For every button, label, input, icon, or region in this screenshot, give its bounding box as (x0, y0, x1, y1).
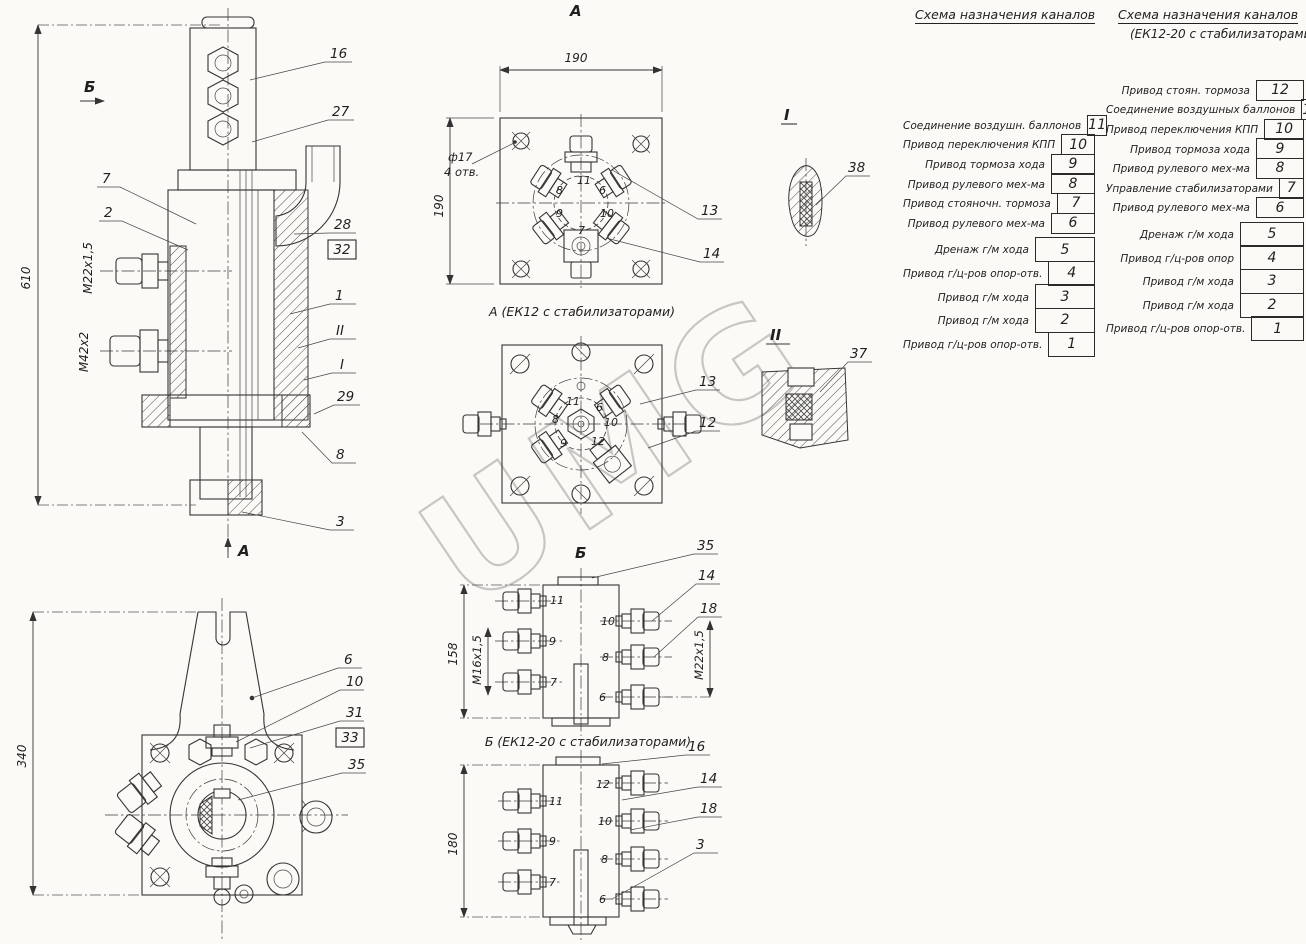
table-row: Привод переключения КПП10 (903, 136, 1095, 156)
port-s2-8: 8 (601, 853, 608, 866)
table-row: Дренаж г/м хода5 (1106, 223, 1304, 247)
channel-number: 12 (1256, 80, 1304, 101)
channel-table-left: Схема назначения каналов Соединение возд… (903, 4, 1095, 357)
channel-number: 11 (1301, 99, 1306, 120)
channel-number: 3 (1240, 269, 1304, 294)
port-b-9: 9 (560, 437, 567, 450)
table-row: Привод переключения КПП10 (1106, 120, 1304, 140)
callout-a-14: 14 (703, 246, 720, 262)
channel-table-right-title: Схема назначения каналов (1118, 7, 1298, 24)
callout-section-ii: II (336, 323, 344, 339)
callout-37: 37 (850, 346, 868, 362)
callout-s1-14: 14 (698, 568, 715, 584)
channel-label: Привод г/м хода (903, 286, 1035, 310)
callout-b-12: 12 (699, 415, 716, 431)
thread-spec-lower: М42х2 (77, 332, 91, 372)
channel-table-right: Схема назначения каналов (ЕК12-20 с стаб… (1106, 4, 1304, 341)
table-row: Привод г/ц-ров опор4 (1106, 247, 1304, 271)
channel-label: Привод г/ц-ров опор-отв. (903, 262, 1048, 286)
table-row: Привод тормоза хода9 (903, 155, 1095, 175)
channel-number: 5 (1035, 237, 1095, 262)
port-a-8: 8 (556, 184, 563, 197)
callout-1: 1 (335, 288, 344, 304)
callout-s2-14: 14 (700, 771, 717, 787)
port-a-6: 6 (599, 184, 606, 197)
channel-label: Привод г/м хода (1106, 270, 1240, 294)
port-a-11: 11 (577, 174, 591, 187)
callout-33: 33 (341, 730, 358, 746)
dim-bottom-height: 340 (15, 744, 29, 767)
port-a-9: 9 (556, 207, 563, 220)
thread-s1-right: М22х1,5 (692, 630, 706, 680)
callout-27: 27 (332, 104, 350, 120)
callout-29: 29 (337, 389, 354, 405)
channel-table-right-subtitle: (ЕК12-20 с стабилизаторами) (1130, 27, 1304, 41)
side-view-2: 12 11 10 9 8 7 6 180 16 14 18 3 (446, 739, 722, 940)
callout-7: 7 (102, 171, 111, 187)
channel-number: 2 (1035, 308, 1095, 333)
table-row: Привод г/м хода2 (1106, 294, 1304, 318)
channel-number: 9 (1051, 154, 1095, 175)
view-b-label: Б (575, 544, 586, 562)
channel-label: Привод тормоза хода (1106, 140, 1256, 160)
table-row: Привод г/ц-ров опор-отв.4 (903, 262, 1095, 286)
channel-label: Привод переключения КПП (1106, 120, 1264, 140)
port-s1-10: 10 (601, 615, 615, 628)
port-s2-7: 7 (549, 876, 556, 889)
detail-ii-label: II (770, 326, 782, 344)
table-row: Привод рулевого мех-ма6 (903, 214, 1095, 234)
view-a-caption: А (ЕК12 с стабилизаторами) (488, 304, 675, 319)
channel-label: Соединение воздушн. баллонов (903, 116, 1087, 136)
flange-view-a: А 190 190 ф17 4 отв. 8 11 6 9 (432, 2, 724, 319)
table-row: Привод тормоза хода9 (1106, 140, 1304, 160)
callout-a-13: 13 (701, 203, 718, 219)
port-a-7: 7 (578, 224, 585, 237)
channel-number: 10 (1061, 134, 1095, 155)
channel-number: 3 (1035, 284, 1095, 309)
channel-label: Привод стояночн. тормоза (903, 194, 1057, 214)
channel-label: Привод г/м хода (903, 309, 1035, 333)
channel-table-left-title: Схема назначения каналов (915, 7, 1095, 24)
view-arrow-b-label: Б (84, 78, 95, 96)
port-b-11: 11 (566, 395, 580, 408)
channel-table-left-rows-top: Соединение воздушн. баллонов11Привод пер… (903, 116, 1095, 234)
channel-number: 8 (1051, 173, 1095, 194)
callout-6: 6 (344, 652, 353, 668)
dim-s1-height: 158 (446, 642, 460, 665)
channel-label: Привод г/ц-ров опор (1106, 247, 1240, 271)
table-row: Привод рулевого мех-ма6 (1106, 199, 1304, 219)
channel-number: 6 (1051, 213, 1095, 234)
callout-38: 38 (848, 160, 865, 176)
dim-total-height: 610 (19, 266, 33, 289)
callout-s2-18: 18 (700, 801, 717, 817)
port-a-10: 10 (600, 207, 614, 220)
dim-a-height: 190 (432, 194, 446, 217)
channel-label: Дренаж г/м хода (903, 239, 1035, 263)
channel-table-left-rows-bottom: Дренаж г/м хода5Привод г/ц-ров опор-отв.… (903, 239, 1095, 357)
callout-8: 8 (336, 447, 345, 463)
table-row: Привод рулевого мех-ма8 (1106, 159, 1304, 179)
port-s2-11: 11 (549, 795, 563, 808)
channel-number: 11 (1087, 115, 1107, 136)
channel-label: Привод тормоза хода (903, 155, 1051, 175)
callout-28: 28 (334, 217, 351, 233)
port-s1-7: 7 (550, 676, 557, 689)
table-row: Привод г/м хода3 (1106, 270, 1304, 294)
callout-3: 3 (336, 514, 345, 530)
channel-label: Управление стабилизаторами (1106, 179, 1279, 199)
channel-label: Привод рулевого мех-ма (1106, 159, 1256, 179)
callout-32: 32 (333, 242, 350, 258)
port-b-10: 10 (604, 416, 618, 429)
channel-number: 4 (1240, 245, 1304, 270)
channel-number: 2 (1240, 293, 1304, 318)
channel-label: Привод г/ц-ров опор-отв. (1106, 318, 1251, 342)
port-b-6: 6 (596, 401, 603, 414)
port-s2-6: 6 (599, 893, 606, 906)
table-row: Привод г/м хода2 (903, 309, 1095, 333)
view-arrow-a-label: А (237, 542, 250, 560)
table-row: Привод стоян. тормоза12 (1106, 81, 1304, 101)
channel-number: 7 (1279, 178, 1304, 199)
channel-number: 5 (1240, 222, 1304, 247)
port-s1-9: 9 (549, 635, 556, 648)
port-b-8: 8 (552, 413, 559, 426)
callout-s1-35: 35 (697, 538, 714, 554)
channel-label: Привод стоян. тормоза (1106, 81, 1256, 101)
table-row: Дренаж г/м хода5 (903, 239, 1095, 263)
callout-s2-3: 3 (696, 837, 705, 853)
channel-number: 9 (1256, 138, 1304, 159)
table-row: Привод г/ц-ров опор-отв.1 (1106, 318, 1304, 342)
port-s2-12: 12 (596, 778, 610, 791)
table-row: Привод рулевого мех-ма8 (903, 175, 1095, 195)
channel-label: Привод переключения КПП (903, 136, 1061, 156)
channel-number: 10 (1264, 119, 1304, 140)
port-s1-8: 8 (602, 651, 609, 664)
callout-s2-16: 16 (688, 739, 705, 755)
channel-label: Привод г/м хода (1106, 294, 1240, 318)
main-section-view: 610 Б М (19, 8, 360, 560)
detail-i-label: I (784, 106, 790, 124)
table-row: Соединение воздушн. баллонов11 (903, 116, 1095, 136)
hole-note-dia: ф17 (448, 150, 473, 164)
dim-s2-height: 180 (446, 832, 460, 855)
callout-10: 10 (346, 674, 363, 690)
hole-note-count: 4 отв. (444, 165, 479, 179)
port-s1-11: 11 (550, 594, 564, 607)
table-row: Управление стабилизаторами7 (1106, 179, 1304, 199)
channel-label: Дренаж г/м хода (1106, 223, 1240, 247)
channel-label: Привод рулевого мех-ма (903, 175, 1051, 195)
callout-35-bottom: 35 (348, 757, 365, 773)
view-a-label: А (569, 2, 582, 20)
port-s2-9: 9 (549, 835, 556, 848)
callout-section-i: I (340, 357, 344, 373)
port-s1-6: 6 (599, 691, 606, 704)
channel-number: 4 (1048, 261, 1095, 286)
channel-table-right-rows-top: Привод стоян. тормоза12Соединение воздуш… (1106, 81, 1304, 218)
callout-b-13: 13 (699, 374, 716, 390)
channel-label: Привод рулевого мех-ма (903, 214, 1051, 234)
table-row: Соединение воздушных баллонов11 (1106, 101, 1304, 121)
table-row: Привод стояночн. тормоза7 (903, 194, 1095, 214)
callout-16: 16 (330, 46, 347, 62)
channel-number: 7 (1057, 193, 1095, 214)
port-s2-10: 10 (598, 815, 612, 828)
table-row: Привод г/м хода3 (903, 286, 1095, 310)
detail-ii: II 37 (762, 326, 872, 448)
channel-number: 6 (1256, 197, 1304, 218)
channel-label: Привод рулевого мех-ма (1106, 199, 1256, 219)
callout-31: 31 (346, 705, 363, 721)
channel-table-right-rows-bottom: Дренаж г/м хода5Привод г/ц-ров опор4Прив… (1106, 223, 1304, 341)
callout-2: 2 (104, 205, 113, 221)
dim-a-width: 190 (565, 51, 588, 65)
channel-label: Привод г/ц-ров опор-отв. (903, 333, 1048, 357)
side1-caption: Б (ЕК12-20 с стабилизаторами) (485, 734, 691, 749)
bottom-view: 340 (15, 598, 366, 940)
channel-number: 1 (1048, 332, 1095, 357)
callout-s1-18: 18 (700, 601, 717, 617)
thread-spec-upper: М22х1,5 (81, 242, 95, 294)
channel-label: Соединение воздушных баллонов (1106, 101, 1301, 121)
table-row: Привод г/ц-ров опор-отв.1 (903, 333, 1095, 357)
thread-s1-left: М16х1,5 (470, 635, 484, 685)
detail-i: I 38 (781, 106, 870, 246)
port-b-12: 12 (591, 435, 605, 448)
channel-number: 8 (1256, 158, 1304, 179)
channel-number: 1 (1251, 316, 1304, 341)
